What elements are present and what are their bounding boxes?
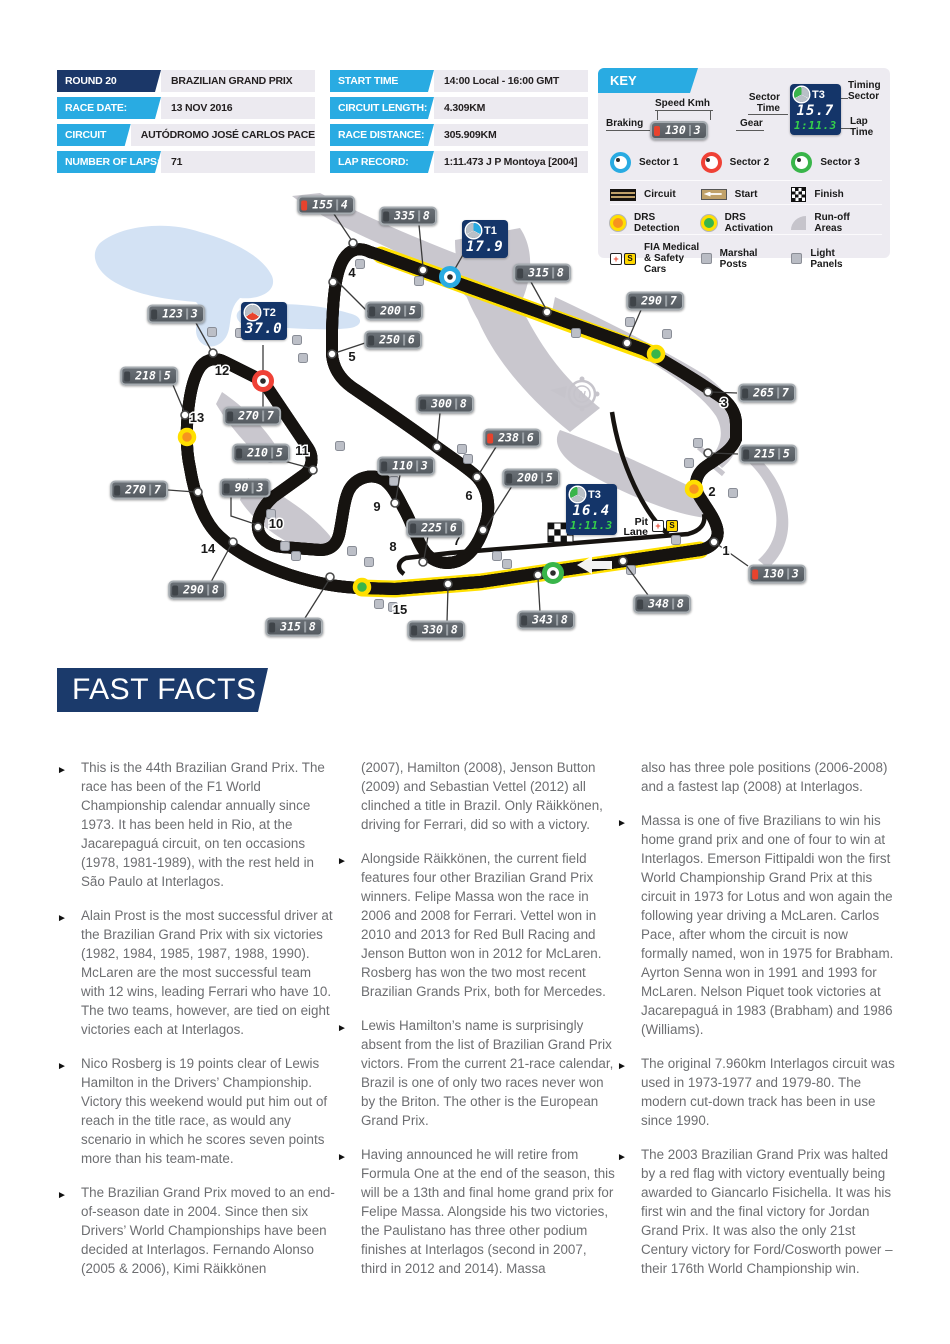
key-title: KEY [598,68,698,93]
gear-notch [151,309,157,319]
speed-gear-box: 3008 [416,395,474,414]
bullet-icon: ► [57,909,67,928]
gear-value: 8 [554,268,567,279]
sector-timing-box: T117.9 [462,220,508,258]
gear-value: 8 [457,399,470,410]
speed-value: 225 [418,523,447,534]
gear-value: 8 [306,622,319,633]
gear-value: 3 [418,461,431,472]
circuit-info-table: START TIME14:00 Local - 16:00 GMTCIRCUIT… [330,70,588,173]
speed-value: 123 [159,309,188,320]
gear-value: 3 [188,309,201,320]
gear-value: 8 [420,211,433,222]
speed-gear-box: 3158 [513,264,571,283]
gear-value: 7 [779,388,792,399]
fact-text: The original 7.960km Interlagos circuit … [641,1054,895,1130]
legend-item: Sector 2 [701,152,792,173]
fact-text: Lewis Hamilton’s name is surprisingly ab… [361,1016,615,1130]
speed-gear-box: 3488 [633,595,691,614]
speed-value: 290 [180,585,209,596]
gear-value: 7 [151,485,164,496]
gear-notch [381,461,387,471]
sector-id: T3 [588,489,601,501]
speed-value: 215 [751,449,780,460]
speed-value: 315 [277,622,306,633]
legend-label: Sector 1 [639,157,678,168]
speed-value: 335 [391,211,420,222]
fact-text: The 2003 Brazilian Grand Prix was halted… [641,1145,895,1278]
gear-value: 7 [264,411,277,422]
bullet-icon: ► [57,761,67,780]
gear-notch [383,211,389,221]
bullet-icon: ► [337,852,347,871]
speed-gear-box: 2907 [626,292,684,311]
gear-notch [410,523,416,533]
speed-value: 343 [529,615,558,626]
medical-car-icon: + [652,520,664,532]
sector-time-label: Sector Time [746,92,780,114]
sector-time: 37.0 [245,321,283,337]
row-label: RACE DATE: [57,97,161,119]
gear-value: 5 [161,371,174,382]
speed-box-example: 130 3 [650,121,708,140]
page: ROUND 20BRAZILIAN GRAND PRIXRACE DATE:13… [0,0,950,1344]
gear-notch [630,296,636,306]
gear-value: 7 [667,296,680,307]
gear-value: 4 [338,200,351,211]
speed-gear-box: 3438 [517,611,575,630]
circuit-map: N [0,185,950,655]
lap-time: 1:11.3 [570,519,613,532]
gear-notch [124,371,130,381]
row-value: BRAZILIAN GRAND PRIX [161,70,315,92]
fact-text: Alain Prost is the most successful drive… [81,906,335,1039]
gear-notch [172,585,178,595]
gear-value: 6 [524,433,537,444]
bullet-icon: ► [337,1148,347,1167]
legend-label: Sector 3 [820,157,859,168]
fact-text: Nico Rosberg is 19 points clear of Lewis… [81,1054,335,1168]
gear-value: 8 [448,625,461,636]
fact-paragraph: ►Alain Prost is the most successful driv… [57,906,335,1039]
row-label: NUMBER OF LAPS: [57,151,161,173]
row-label: RACE DISTANCE: [330,124,434,146]
row-value: AUTÓDROMO JOSÉ CARLOS PACE [131,124,315,146]
gear-value: 3 [253,483,266,494]
speed-gear-box: 2707 [223,407,281,426]
sector-marker-icon [610,152,631,173]
gear-notch [420,399,426,409]
gear-notch [517,268,523,278]
bullet-icon: ► [617,1148,627,1167]
row-label: LAP RECORD: [330,151,434,173]
row-label: ROUND 20 [57,70,161,92]
speed-value: 300 [428,399,457,410]
map-overlay: 1554335831582907265721551303348834383308… [0,185,950,655]
gear-value: 3 [789,569,802,580]
pit-lane-label: Pit Lane [610,517,648,537]
speed-gear-box: 2908 [168,581,226,600]
fast-facts-title-bar: FAST FACTS [57,668,268,712]
fact-paragraph: ►The Brazilian Grand Prix moved to an en… [57,1183,335,1278]
sector-pie-icon [570,487,585,502]
gear-notch [224,483,230,493]
braking-label: Braking [606,118,643,129]
speed-value: 200 [377,306,406,317]
sector-marker-icon [791,152,812,173]
gear-notch [269,622,275,632]
gear-value: 8 [674,599,687,610]
speed-gear-box: 2105 [232,444,290,463]
speed-gear-box: 2185 [120,367,178,386]
fast-facts-column-1: ►This is the 44th Brazilian Grand Prix. … [57,758,335,1293]
speed-value: 200 [514,473,543,484]
sector-pie-icon [245,305,260,320]
speed-value: 238 [495,433,524,444]
braking-indicator [301,200,307,210]
gear-notch [369,306,375,316]
braking-indicator [654,126,660,136]
speed-gear-box: 2005 [365,302,423,321]
row-label: START TIME [330,70,434,92]
table-row: CIRCUIT NAME:AUTÓDROMO JOSÉ CARLOS PACE [57,124,315,146]
speed-value: 265 [750,388,779,399]
gear-value: 8 [209,585,222,596]
speed-value: 348 [645,599,674,610]
speed-gear-box: 903 [220,479,271,498]
fact-paragraph: ►Alongside Räikkönen, the current field … [337,849,615,1001]
speed-value: 315 [525,268,554,279]
medical-safety-icons: + S [652,520,678,532]
bullet-icon: ► [57,1186,67,1205]
bullet-icon: ► [337,1019,347,1038]
gear-notch [227,411,233,421]
speed-gear-box: 1554 [297,196,355,215]
fact-text: Massa is one of five Brazilians to win h… [641,811,895,1039]
fact-text: Having announced he will retire from For… [361,1145,615,1278]
fast-facts-title: FAST FACTS [72,673,257,706]
fact-text: This is the 44th Brazilian Grand Prix. T… [81,758,335,891]
speed-value: 270 [235,411,264,422]
speed-gear-box: 2707 [110,481,168,500]
table-row: START TIME14:00 Local - 16:00 GMT [330,70,588,92]
speed-value: 130 [760,569,789,580]
fact-text: Alongside Räikkönen, the current field f… [361,849,615,1001]
speed-value: 218 [132,371,161,382]
speed-gear-box: 3308 [407,621,465,640]
gear-notch [114,485,120,495]
fact-paragraph: ►Lewis Hamilton’s name is surprisingly a… [337,1016,615,1130]
speed-value: 155 [309,200,338,211]
sector-pie-icon [466,223,481,238]
gear-notch [743,449,749,459]
sector-id: T2 [263,307,276,319]
row-label: CIRCUIT NAME: [57,124,131,146]
gear-value: 8 [558,615,571,626]
speed-value: 290 [638,296,667,307]
gear-notch [411,625,417,635]
timing-sector-label: Timing Sector [848,80,881,102]
sector-timing-box: T237.0 [241,302,287,340]
speed-value: 90 [232,483,254,494]
fact-paragraph: ►This is the 44th Brazilian Grand Prix. … [57,758,335,891]
gear-notch [506,473,512,483]
fact-text: (2007), Hamilton (2008), Jenson Button (… [361,758,615,834]
row-value: 13 NOV 2016 [161,97,315,119]
fact-paragraph: ►Nico Rosberg is 19 points clear of Lewi… [57,1054,335,1168]
sector-marker-icon [701,152,722,173]
table-row: RACE DISTANCE:305.909KM [330,124,588,146]
row-value: 4.309KM [434,97,588,119]
speed-gear-box: 3158 [265,618,323,637]
bullet-icon: ► [617,1057,627,1076]
fact-text: also has three pole positions (2006-2008… [641,758,895,796]
speed-value: 110 [389,461,418,472]
gear-value: 5 [543,473,556,484]
sector-time: 16.4 [570,503,613,519]
speed-gear-box: 2155 [739,445,797,464]
fact-paragraph: ►The 2003 Brazilian Grand Prix was halte… [617,1145,895,1278]
legend-item: Sector 1 [610,152,701,173]
fact-paragraph: (2007), Hamilton (2008), Jenson Button (… [337,758,615,834]
gear-notch [637,599,643,609]
sector-id: T1 [484,225,497,237]
speed-value: 250 [376,335,405,346]
speed-gear-box: 2005 [502,469,560,488]
speed-kmh-label: Speed Kmh [655,98,710,109]
speed-gear-box: 2657 [738,384,796,403]
fast-facts-column-2: (2007), Hamilton (2008), Jenson Button (… [337,758,615,1293]
fact-text: The Brazilian Grand Prix moved to an end… [81,1183,335,1278]
legend-item: Sector 3 [791,152,882,173]
gear-label: Gear [740,118,763,129]
speed-value: 210 [244,448,273,459]
braking-indicator [487,433,493,443]
gear-notch [368,335,374,345]
gear-value: 6 [447,523,460,534]
row-label: CIRCUIT LENGTH: [330,97,434,119]
sector-pie-icon [794,87,809,102]
speed-gear-box: 2256 [406,519,464,538]
safety-car-icon: S [666,520,678,532]
gear-notch [742,388,748,398]
row-value: 14:00 Local - 16:00 GMT [434,70,588,92]
speed-value: 330 [419,625,448,636]
sector-time: 17.9 [466,239,504,255]
speed-gear-box: 1103 [377,457,435,476]
table-row: CIRCUIT LENGTH:4.309KM [330,97,588,119]
table-row: RACE DATE:13 NOV 2016 [57,97,315,119]
gear-notch [521,615,527,625]
bullet-icon: ► [617,814,627,833]
fact-paragraph: ►Massa is one of five Brazilians to win … [617,811,895,1039]
table-row: NUMBER OF LAPS:71 [57,151,315,173]
gear-value: 5 [273,448,286,459]
gear-notch [236,448,242,458]
gear-value: 5 [406,306,419,317]
legend-label: Sector 2 [730,157,769,168]
table-row: ROUND 20BRAZILIAN GRAND PRIX [57,70,315,92]
fact-paragraph: ►Having announced he will retire from Fo… [337,1145,615,1278]
speed-gear-box: 1303 [748,565,806,584]
timing-box-example: T3 15.7 1:11.3 [790,84,841,135]
fact-paragraph: ►The original 7.960km Interlagos circuit… [617,1054,895,1130]
gear-value: 6 [405,335,418,346]
row-value: 305.909KM [434,124,588,146]
speed-gear-box: 2506 [364,331,422,350]
key-sectors-row: Sector 1Sector 2Sector 3 [610,152,882,173]
row-value: 71 [161,151,315,173]
braking-indicator [752,569,758,579]
race-info-table: ROUND 20BRAZILIAN GRAND PRIXRACE DATE:13… [57,70,315,173]
gear-value: 5 [780,449,793,460]
lap-time-label: Lap Time [850,116,873,138]
fast-facts-column-3: also has three pole positions (2006-2008… [617,758,895,1293]
speed-value: 270 [122,485,151,496]
table-row: LAP RECORD:1:11.473 J P Montoya [2004] [330,151,588,173]
fact-paragraph: also has three pole positions (2006-2008… [617,758,895,796]
bullet-icon: ► [57,1057,67,1076]
speed-gear-box: 2386 [483,429,541,448]
speed-gear-box: 3358 [379,207,437,226]
row-value: 1:11.473 J P Montoya [2004] [434,151,588,173]
speed-gear-box: 1233 [147,305,205,324]
